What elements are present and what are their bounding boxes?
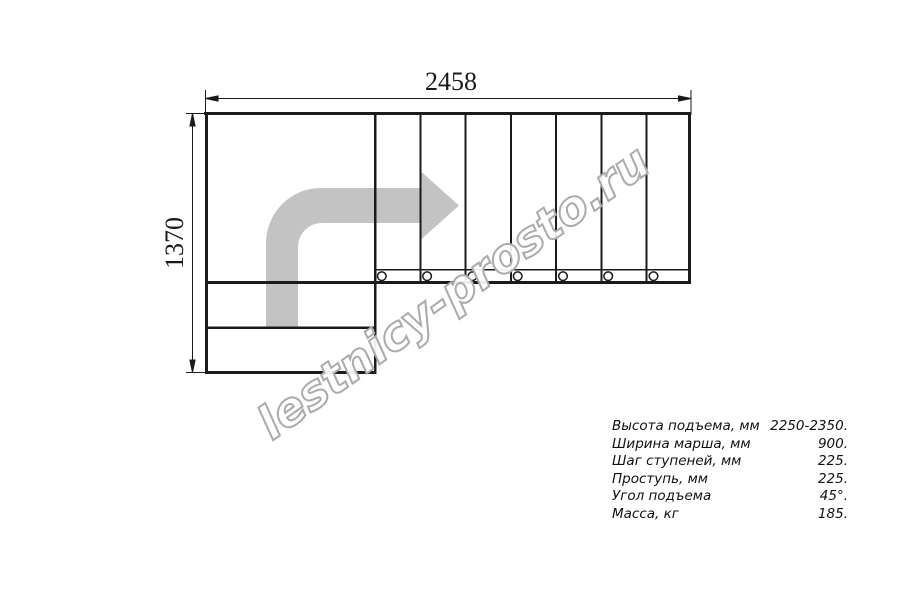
spec-label: Масса, кг — [612, 506, 679, 522]
spec-value: 45°. — [820, 488, 848, 504]
spec-row-flight-width: Ширина марша, мм 900. — [612, 436, 848, 454]
spec-table: Высота подъема, мм 2250-2350. Ширина мар… — [612, 418, 848, 524]
spec-label: Угол подъема — [612, 488, 711, 504]
dim-arrowhead-right — [679, 96, 692, 101]
spec-label: Ширина марша, мм — [612, 436, 751, 452]
spec-value: 225. — [818, 471, 848, 487]
dim-arrowhead-top — [190, 114, 195, 127]
spec-row-tread: Проступь, мм 225. — [612, 471, 848, 489]
stair-drawing-page: 2458 1370 lestnicy-prosto.ru Высота подъ… — [0, 0, 900, 600]
spec-label: Высота подъема, мм — [612, 418, 760, 434]
spec-value: 900. — [818, 436, 848, 452]
width-dimension-label: 2458 — [425, 67, 477, 96]
spec-label: Проступь, мм — [612, 471, 708, 487]
spec-value: 185. — [818, 506, 848, 522]
height-dimension-label: 1370 — [160, 217, 189, 269]
spec-label: Шаг ступеней, мм — [612, 453, 741, 469]
spec-value: 2250-2350. — [770, 418, 848, 434]
site-watermark: lestnicy-prosto.ru — [247, 134, 659, 450]
spec-value: 225. — [818, 453, 848, 469]
spec-row-step-pitch: Шаг ступеней, мм 225. — [612, 453, 848, 471]
dim-arrowhead-bottom — [190, 360, 195, 373]
spec-row-mass: Масса, кг 185. — [612, 506, 848, 524]
dim-arrowhead-left — [206, 96, 219, 101]
spec-row-height: Высота подъема, мм 2250-2350. — [612, 418, 848, 436]
spec-row-angle: Угол подъема 45°. — [612, 488, 848, 506]
